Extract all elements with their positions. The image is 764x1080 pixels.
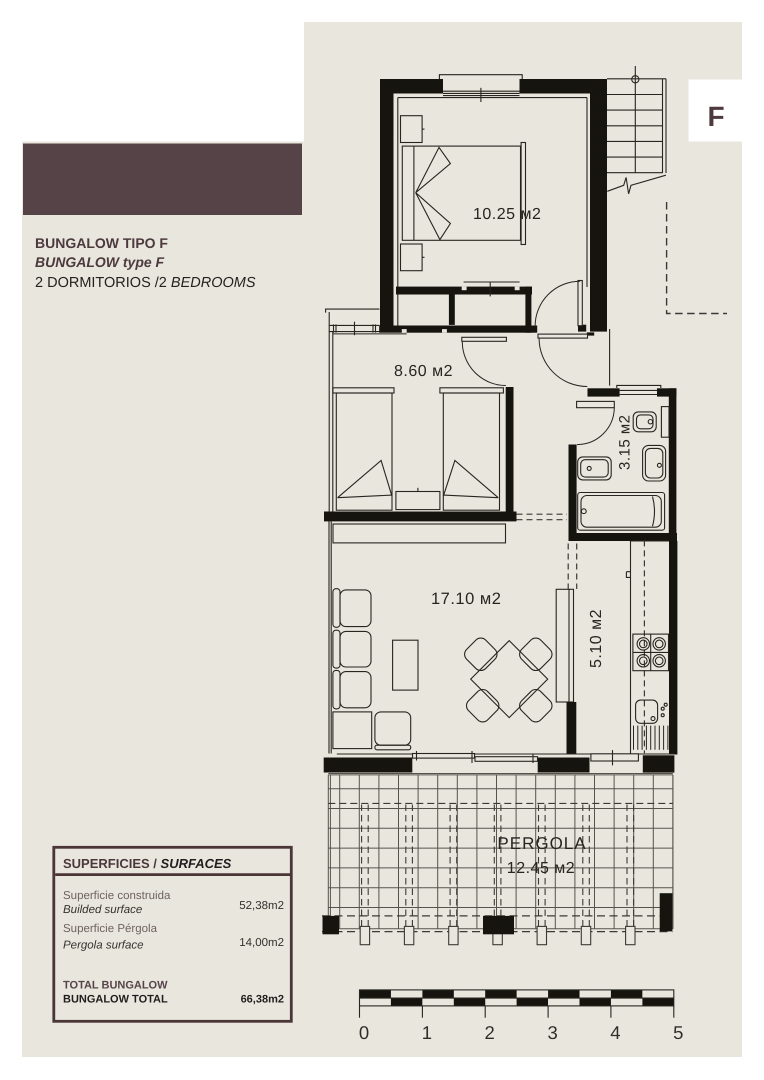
svg-text:2: 2 [485, 1022, 495, 1043]
svg-text:10.25 м2: 10.25 м2 [473, 206, 541, 223]
svg-text:Pergola surface: Pergola surface [63, 940, 144, 952]
svg-text:BUNGALOW TOTAL: BUNGALOW TOTAL [63, 994, 168, 1006]
svg-text:0: 0 [359, 1022, 369, 1043]
svg-text:5: 5 [673, 1022, 683, 1043]
svg-text:3: 3 [547, 1022, 557, 1043]
svg-text:4: 4 [610, 1022, 620, 1043]
svg-text:66,38m2: 66,38m2 [241, 994, 284, 1006]
svg-text:3.15 м2: 3.15 м2 [617, 414, 634, 470]
svg-text:F: F [707, 101, 724, 132]
svg-text:8.60 м2: 8.60 м2 [394, 363, 453, 380]
svg-text:BUNGALOW TIPO F: BUNGALOW TIPO F [35, 235, 168, 251]
svg-text:TOTAL BUNGALOW: TOTAL BUNGALOW [63, 980, 168, 992]
svg-text:PERGOLA: PERGOLA [497, 834, 586, 853]
svg-text:17.10 м2: 17.10 м2 [431, 590, 501, 608]
svg-text:2 DORMITORIOS /2 BEDROOMS: 2 DORMITORIOS /2 BEDROOMS [35, 275, 256, 291]
svg-text:1: 1 [422, 1022, 432, 1043]
svg-text:BUNGALOW type F: BUNGALOW type F [35, 254, 165, 270]
svg-text:5.10 м2: 5.10 м2 [588, 609, 605, 668]
svg-text:Builded surface: Builded surface [63, 904, 142, 916]
svg-text:12.45 м2: 12.45 м2 [507, 860, 575, 877]
svg-text:SUPERFICIES / SURFACES: SUPERFICIES / SURFACES [63, 856, 232, 871]
svg-text:52,38m2: 52,38m2 [239, 900, 284, 912]
svg-text:Superficie Pérgola: Superficie Pérgola [63, 923, 158, 935]
svg-text:14,00m2: 14,00m2 [239, 937, 284, 949]
svg-text:Superficie construida: Superficie construida [63, 890, 171, 902]
